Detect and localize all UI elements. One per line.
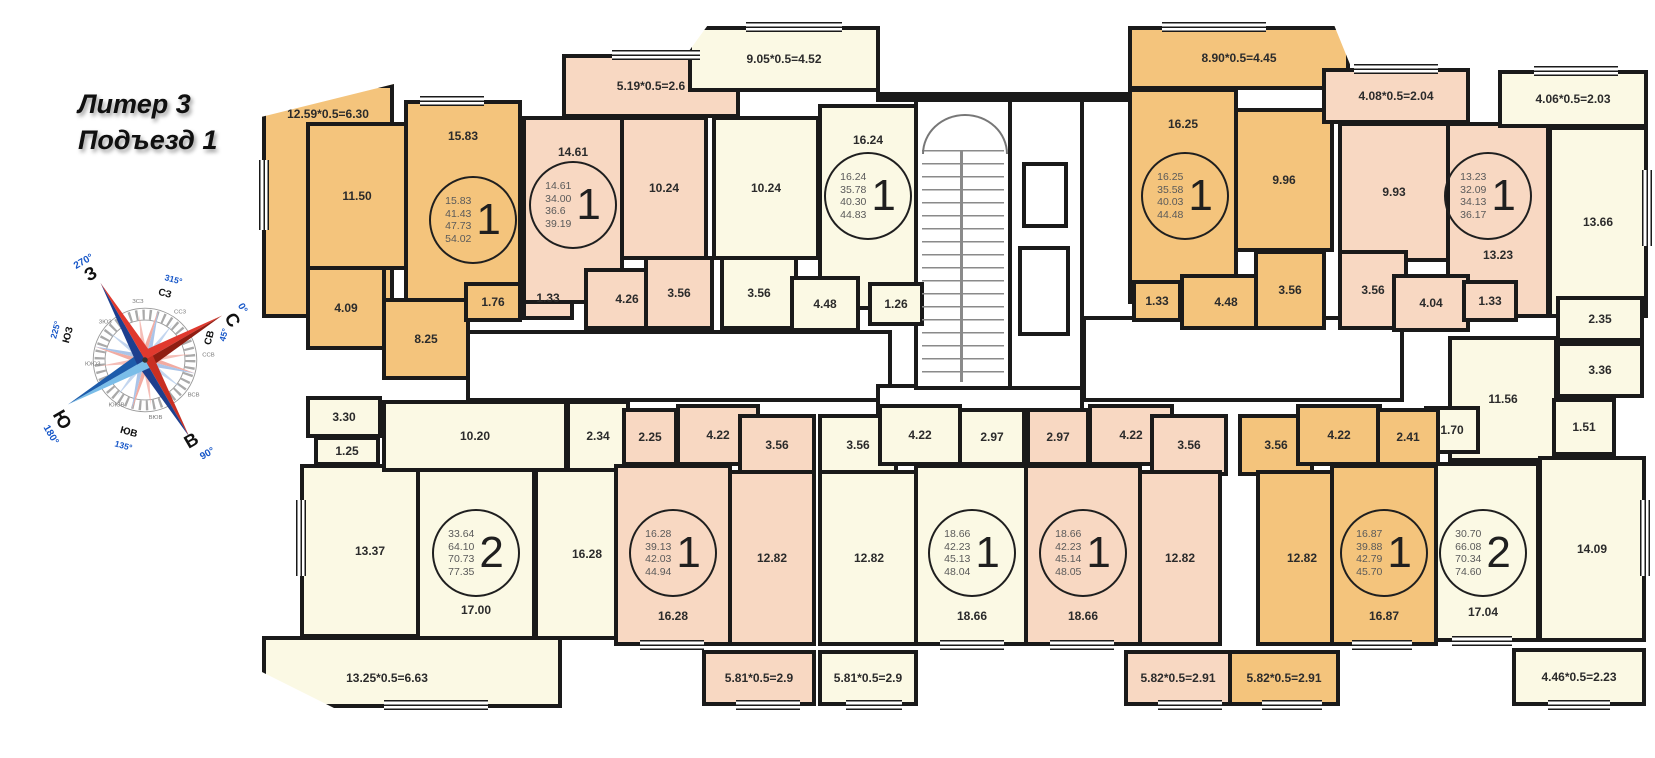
floor-plan-canvas: Литер 3 Подъезд 1 С 0° В 90° Ю 180° З 27: [0, 0, 1655, 758]
apartment-rooms-count-apt3: 1: [576, 183, 600, 227]
apartment-rooms-count-apt5: 1: [676, 531, 700, 575]
apartment-areas-apt2: 33.6464.1070.7377.35: [448, 528, 474, 578]
room-label-apt10-balcony: 8.90*0.5=4.45: [1201, 51, 1276, 65]
room-label-apt2-hall: 10.20: [460, 429, 490, 443]
apartment-areas-apt4: 16.2435.7840.3044.83: [840, 171, 866, 221]
window: [1640, 500, 1650, 576]
compass-east-deg: 90°: [198, 445, 217, 462]
compass-sw-deg: 225°: [48, 319, 62, 339]
room-label-apt1-hall: 8.25: [414, 332, 437, 346]
room-label-apt3-hall: 4.26: [615, 292, 638, 306]
apartment-rooms-count-apt6: 1: [975, 531, 999, 575]
room-label-apt2-wc: 1.25: [335, 444, 358, 458]
window: [1352, 640, 1412, 650]
room-label-apt1-kitchen: 11.50: [342, 189, 371, 203]
room-label-apt9-balcony-top: 4.06*0.5=2.03: [1535, 92, 1610, 106]
room-label-apt10-bath: 3.56: [1278, 283, 1301, 297]
room-label-apt7-kitchen: 12.82: [1165, 551, 1195, 565]
room-label-apt5-kitchen: 12.82: [757, 551, 787, 565]
window: [1158, 700, 1222, 710]
compass-minor-label: ВСВ: [188, 392, 200, 398]
apartment-circle-apt11: 13.2332.0934.1336.171: [1444, 152, 1532, 240]
elevator-2: [1018, 246, 1070, 336]
room-label-apt2-room2: 16.28: [572, 547, 602, 561]
plan-title: Литер 3 Подъезд 1: [78, 86, 217, 158]
room-label-apt8-closet: 2.41: [1396, 430, 1419, 444]
room-label-apt7-room: 18.66: [1068, 609, 1098, 623]
apartment-areas-apt7: 18.6642.2345.1448.05: [1055, 528, 1081, 578]
window: [1354, 64, 1438, 74]
room-label-apt2-kitchen: 13.37: [355, 544, 385, 558]
compass-star: [36, 248, 254, 472]
stair-treads: [922, 150, 1004, 382]
apartment-rooms-count-apt10: 1: [1188, 174, 1212, 218]
compass-rose: С 0° В 90° Ю 180° З 270° СЗ 315° СВ 45° …: [36, 248, 254, 472]
room-label-apt6-balcony: 5.81*0.5=2.9: [834, 671, 902, 685]
room-label-apt4-bath: 3.56: [747, 286, 770, 300]
room-label-apt4-closet: 1.26: [884, 297, 907, 311]
room-label-apt1-room: 15.83: [448, 129, 478, 143]
window: [640, 640, 704, 650]
room-label-apt6-room: 18.66: [957, 609, 987, 623]
window: [259, 160, 269, 230]
apartment-rooms-count-apt11: 1: [1491, 174, 1515, 218]
stair-stringer: [960, 150, 963, 382]
room-label-apt9-wc: 1.51: [1572, 420, 1595, 434]
plan-title-line2: Подъезд 1: [78, 122, 217, 158]
room-label-apt6-hall: 4.22: [908, 428, 931, 442]
apartment-circle-apt5: 16.2839.1342.0344.941: [629, 509, 717, 597]
apartment-areas-apt5: 16.2839.1342.0344.94: [645, 528, 671, 578]
apartment-areas-apt6: 18.6642.2345.1348.04: [944, 528, 970, 578]
room-label-apt10-closet: 1.33: [1145, 294, 1168, 308]
window: [1262, 700, 1322, 710]
room-label-apt8-room: 16.87: [1369, 609, 1399, 623]
apartment-areas-apt3: 14.6134.0036.639.19: [545, 180, 571, 230]
room-label-apt3-room: 14.61: [558, 145, 588, 159]
apartment-rooms-count-apt9: 2: [1486, 531, 1510, 575]
compass-minor-label: ЮЮВ: [109, 402, 125, 408]
apartment-areas-apt10: 16.2535.5840.0344.48: [1157, 171, 1183, 221]
room-label-apt6-bath: 3.56: [846, 438, 869, 452]
apartment-circle-apt8: 16.8739.8842.7945.701: [1340, 509, 1428, 597]
room-label-apt8-kitchen: 12.82: [1287, 551, 1317, 565]
apartment-circle-apt2: 33.6464.1070.7377.352: [432, 509, 520, 597]
apartment-circle-apt7: 18.6642.2345.1448.051: [1039, 509, 1127, 597]
room-label-apt5-hall: 4.22: [706, 428, 729, 442]
room-label-apt10-kitchen: 9.96: [1272, 173, 1295, 187]
apartment-circle-apt10: 16.2535.5840.0344.481: [1141, 152, 1229, 240]
room-label-apt1-balcony: 12.59*0.5=6.30: [287, 107, 369, 121]
compass-minor-label: ЗСЗ: [132, 299, 144, 305]
window: [746, 22, 842, 32]
room-label-apt4-kitchen: 10.24: [751, 181, 781, 195]
compass-ne-label: СВ: [203, 329, 217, 346]
room-label-apt5-balcony: 5.81*0.5=2.9: [725, 671, 793, 685]
apartment-circle-apt3: 14.6134.0036.639.191: [529, 161, 617, 249]
apartment-circle-apt4: 16.2435.7840.3044.831: [824, 152, 912, 240]
corridor-left: [466, 330, 892, 402]
window: [1548, 700, 1610, 710]
room-label-apt5-closet: 2.25: [638, 430, 661, 444]
room-label-apt11-hall: 4.04: [1419, 296, 1442, 310]
room-label-apt9-closet170: 1.70: [1440, 423, 1463, 437]
apartment-rooms-count-apt7: 1: [1086, 531, 1110, 575]
apartment-circle-apt9: 30.7066.0870.3474.602: [1439, 509, 1527, 597]
room-label-apt4-room: 16.24: [853, 133, 883, 147]
room-label-apt9-bath: 3.36: [1588, 363, 1611, 377]
compass-nw-label: СЗ: [157, 287, 173, 301]
room-label-apt2-bath: 3.30: [332, 410, 355, 424]
room-label-apt9-closet235: 2.35: [1588, 312, 1611, 326]
room-label-apt11-kitchen: 9.93: [1382, 185, 1405, 199]
apartment-rooms-count-apt2: 2: [479, 531, 503, 575]
room-label-apt10-hall: 4.48: [1214, 295, 1237, 309]
window: [384, 700, 488, 710]
compass-nw-deg: 315°: [164, 272, 184, 286]
room-label-apt11-bath: 3.56: [1361, 283, 1384, 297]
room-label-apt1-bath: 4.09: [334, 301, 357, 315]
elevator-shaft: [1008, 98, 1084, 390]
window: [1452, 636, 1512, 646]
room-label-apt4-hall: 4.48: [813, 297, 836, 311]
room-label-apt8-balcony: 5.82*0.5=2.91: [1246, 671, 1321, 685]
room-label-apt6-closet: 2.97: [980, 430, 1003, 444]
elevator-1: [1022, 162, 1068, 228]
apartment-circle-apt6: 18.6642.2345.1348.041: [928, 509, 1016, 597]
window: [736, 700, 800, 710]
room-label-apt9-balcony-bottom: 4.46*0.5=2.23: [1541, 670, 1616, 684]
room-label-apt5-room: 16.28: [658, 609, 688, 623]
room-label-apt8-hall: 4.22: [1327, 428, 1350, 442]
window: [1534, 66, 1618, 76]
room-label-apt7-closet: 2.97: [1046, 430, 1069, 444]
room-label-apt9-hall: 11.56: [1488, 392, 1517, 406]
room-label-apt7-balcony: 5.82*0.5=2.91: [1140, 671, 1215, 685]
apartment-rooms-count-apt8: 1: [1387, 531, 1411, 575]
room-label-apt3-bath: 3.56: [667, 286, 690, 300]
room-label-apt2-closet: 2.34: [586, 429, 609, 443]
apartment-areas-apt1: 15.8341.4347.7354.02: [445, 195, 471, 245]
room-label-apt10-room: 16.25: [1168, 117, 1198, 131]
window: [940, 640, 1004, 650]
apartment-rooms-count-apt1: 1: [476, 198, 500, 242]
room-label-apt3-balcony: 5.19*0.5=2.6: [617, 79, 685, 93]
compass-minor-label: ЮЮЗ: [85, 361, 101, 367]
room-label-apt1-closet: 1.76: [481, 295, 504, 309]
compass-minor-label: ВЮВ: [149, 415, 163, 421]
window: [612, 50, 700, 60]
compass-minor-label: ЗЮЗ: [99, 320, 113, 326]
room-label-apt2-balcony: 13.25*0.5=6.63: [346, 671, 428, 685]
room-label-apt8-bath: 3.56: [1264, 438, 1287, 452]
room-label-apt9-room1: 13.66: [1583, 215, 1613, 229]
room-label-apt3-closet: 1.33: [536, 291, 559, 305]
compass-minor-label: ССВ: [202, 352, 215, 358]
room-label-apt7-hall: 4.22: [1119, 428, 1142, 442]
window: [296, 500, 306, 576]
room-label-apt3-kitchen: 10.24: [649, 181, 679, 195]
apartment-circle-apt1: 15.8341.4347.7354.021: [429, 176, 517, 264]
room-label-apt2-room1: 17.00: [461, 603, 491, 617]
window: [420, 96, 484, 106]
window: [846, 700, 902, 710]
plan-title-line1: Литер 3: [78, 86, 217, 122]
compass-minor-label: ССЗ: [174, 310, 186, 316]
apartment-areas-apt9: 30.7066.0870.3474.60: [1455, 528, 1481, 578]
compass-se-label: ЮВ: [119, 425, 139, 440]
room-label-apt4-balcony: 9.05*0.5=4.52: [746, 52, 821, 66]
window: [1642, 170, 1652, 246]
room-label-apt11-balcony: 4.08*0.5=2.04: [1358, 89, 1433, 103]
window: [1162, 22, 1266, 32]
compass-sw-label: ЮЗ: [61, 326, 76, 345]
window: [1050, 640, 1114, 650]
room-label-apt7-bath: 3.56: [1177, 438, 1200, 452]
apartment-areas-apt11: 13.2332.0934.1336.17: [1460, 171, 1486, 221]
compass-se-deg: 135°: [114, 439, 134, 453]
compass-east-label: В: [181, 429, 202, 453]
room-label-apt5-bath: 3.56: [765, 438, 788, 452]
room-label-apt9-kitchen: 14.09: [1577, 542, 1607, 556]
room-label-apt11-room: 13.23: [1483, 248, 1513, 262]
apartment-areas-apt8: 16.8739.8842.7945.70: [1356, 528, 1382, 578]
room-label-apt6-kitchen: 12.82: [854, 551, 884, 565]
room-label-apt11-closet: 1.33: [1478, 294, 1501, 308]
room-label-apt9-room2: 17.04: [1468, 605, 1498, 619]
apartment-rooms-count-apt4: 1: [871, 174, 895, 218]
